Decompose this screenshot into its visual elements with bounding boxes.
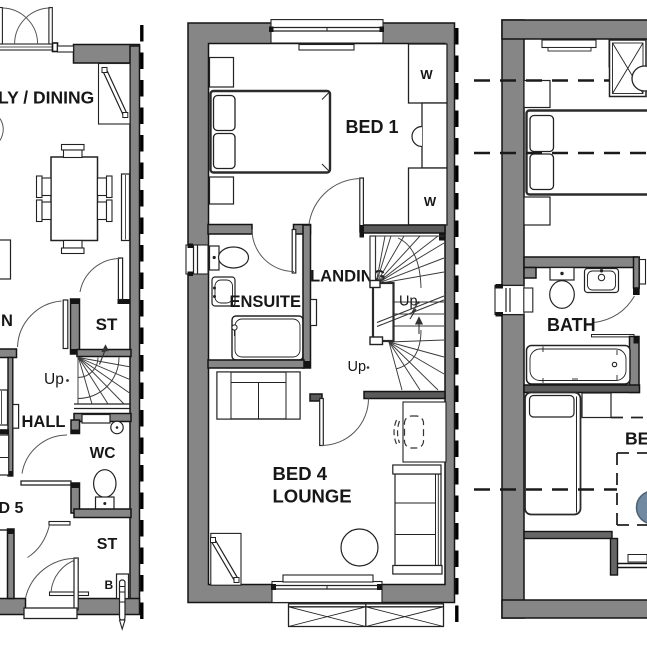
svg-text:BED 1: BED 1 xyxy=(345,117,398,137)
svg-text:WC: WC xyxy=(90,445,116,462)
svg-text:B: B xyxy=(105,578,114,592)
svg-text:HALL: HALL xyxy=(22,413,66,431)
svg-text:BED 4: BED 4 xyxy=(273,463,328,484)
svg-text:ST: ST xyxy=(96,315,118,334)
svg-text:Up: Up xyxy=(399,294,418,310)
svg-text:N: N xyxy=(1,312,13,330)
svg-text:W: W xyxy=(420,67,433,82)
svg-text:LY / DINING: LY / DINING xyxy=(0,88,94,108)
svg-text:D 5: D 5 xyxy=(0,500,24,517)
svg-text:ST: ST xyxy=(97,536,118,553)
svg-text:Up: Up xyxy=(348,359,367,375)
svg-text:ENSUITE: ENSUITE xyxy=(230,293,302,311)
svg-text:BE: BE xyxy=(625,429,647,449)
svg-text:LOUNGE: LOUNGE xyxy=(273,486,352,507)
svg-text:Up: Up xyxy=(44,371,64,388)
svg-text:BATH: BATH xyxy=(547,315,596,335)
svg-text:W: W xyxy=(424,194,437,209)
